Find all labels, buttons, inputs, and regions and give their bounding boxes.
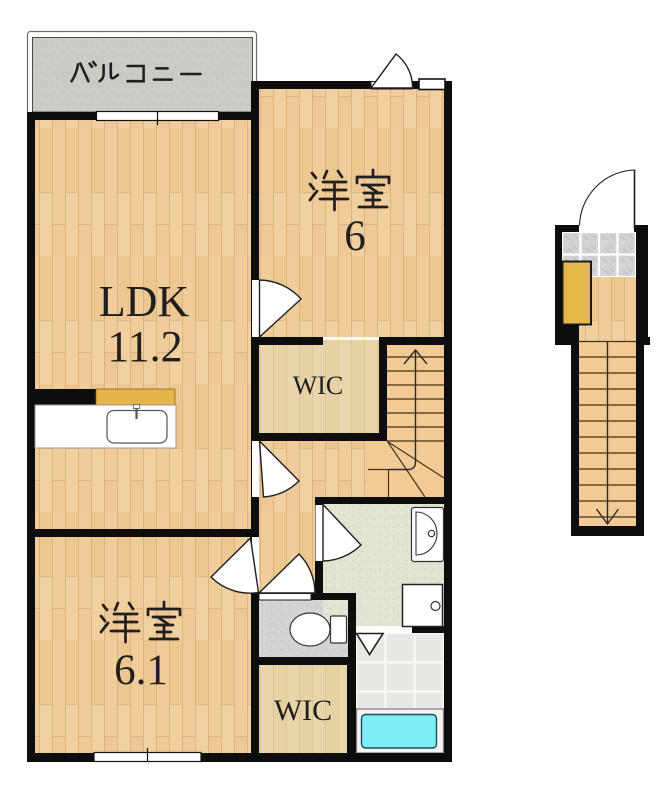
svg-text:WIC: WIC [293, 371, 344, 400]
svg-text:WIC: WIC [274, 694, 332, 727]
svg-text:LDK: LDK [99, 277, 190, 326]
svg-text:11.2: 11.2 [107, 322, 182, 371]
svg-text:6: 6 [344, 213, 366, 260]
svg-text:6.1: 6.1 [114, 647, 168, 694]
